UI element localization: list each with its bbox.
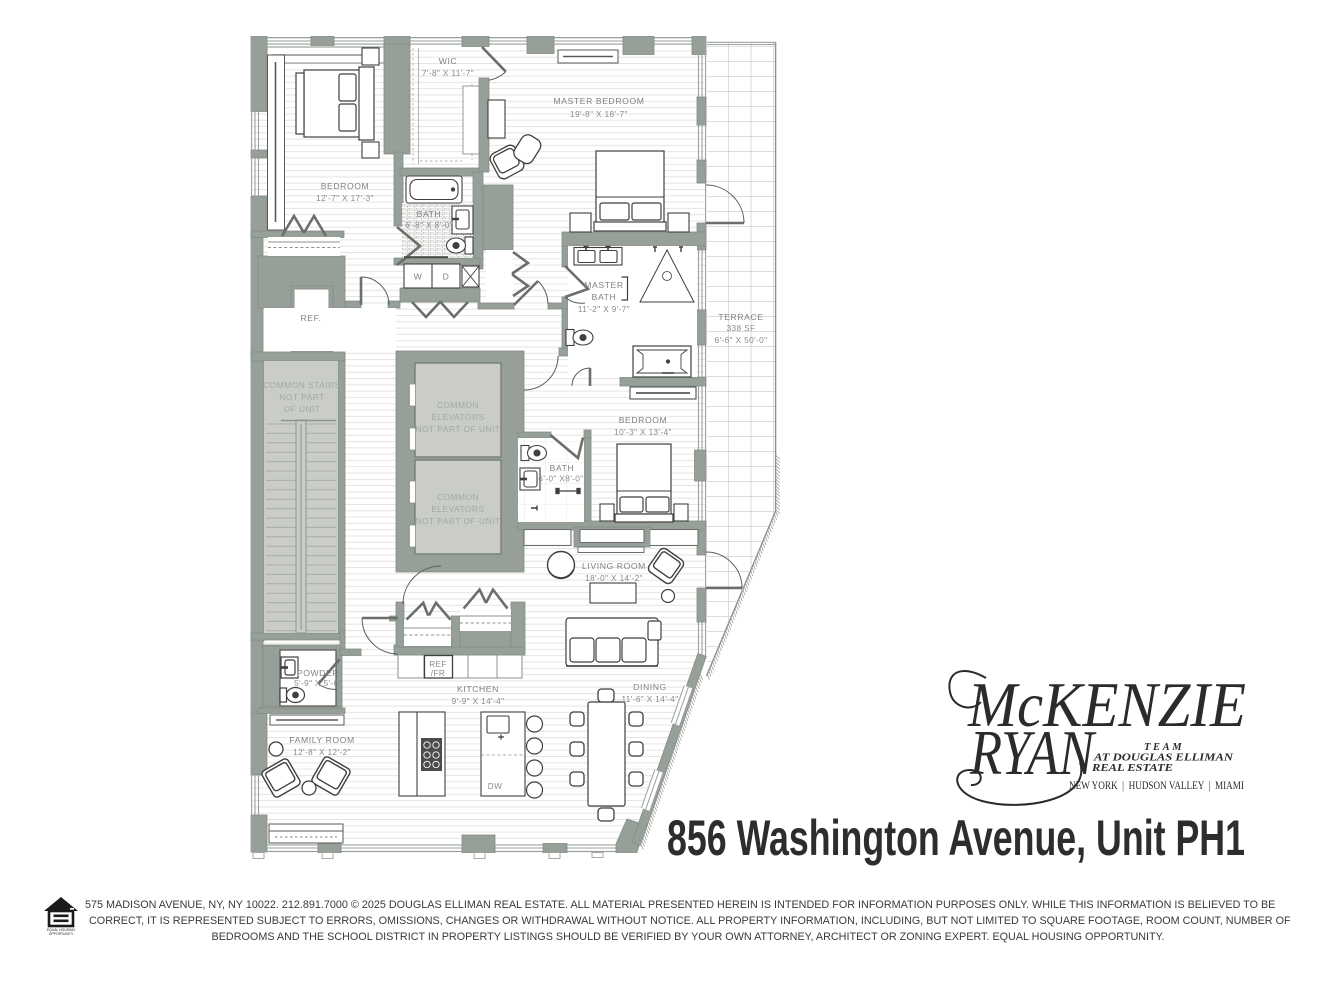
svg-text:NOT PART OF UNIT: NOT PART OF UNIT bbox=[415, 424, 500, 434]
svg-text:BATH: BATH bbox=[592, 292, 617, 302]
svg-text:FAMILY ROOM: FAMILY ROOM bbox=[289, 735, 355, 745]
svg-text:POWDER: POWDER bbox=[297, 668, 339, 678]
svg-text:DW: DW bbox=[488, 782, 502, 791]
svg-text:BEDROOMS AND THE SCHOOL DISTRI: BEDROOMS AND THE SCHOOL DISTRICT IN PROP… bbox=[212, 931, 1165, 943]
svg-text:COMMON STAIRS: COMMON STAIRS bbox=[263, 380, 341, 390]
svg-text:11'-2" X 9'-7": 11'-2" X 9'-7" bbox=[578, 305, 630, 314]
svg-text:338 SF: 338 SF bbox=[727, 324, 756, 333]
svg-text:11'-6" X 14'-4": 11'-6" X 14'-4" bbox=[621, 695, 678, 704]
svg-text:12'-7" X 17'-3": 12'-7" X 17'-3" bbox=[316, 194, 374, 203]
svg-text:12'-8" X 12'-2": 12'-8" X 12'-2" bbox=[293, 748, 351, 757]
svg-text:D: D bbox=[443, 272, 450, 282]
svg-text:REAL ESTATE: REAL ESTATE bbox=[1091, 763, 1173, 774]
svg-text:/FR: /FR bbox=[431, 669, 445, 678]
svg-text:COMMON: COMMON bbox=[437, 492, 479, 502]
svg-text:REF.: REF. bbox=[300, 313, 321, 323]
svg-text:COMMON: COMMON bbox=[437, 400, 479, 410]
svg-text:6'-8" X 8'-0": 6'-8" X 8'-0" bbox=[405, 221, 453, 230]
svg-text:ELEVATORS: ELEVATORS bbox=[431, 504, 484, 514]
svg-text:10'-3" X 13'-4": 10'-3" X 13'-4" bbox=[614, 428, 672, 437]
svg-text:18'-0" X 14'-2": 18'-0" X 14'-2" bbox=[585, 574, 643, 583]
svg-text:LIVING ROOM: LIVING ROOM bbox=[582, 561, 646, 571]
svg-text:6'-0" X8'-0": 6'-0" X8'-0" bbox=[538, 475, 583, 484]
svg-text:W: W bbox=[414, 272, 423, 282]
svg-text:ELEVATORS: ELEVATORS bbox=[431, 412, 484, 422]
svg-text:BEDROOM: BEDROOM bbox=[321, 181, 370, 191]
svg-text:9'-9" X 14'-4": 9'-9" X 14'-4" bbox=[452, 697, 505, 706]
svg-text:OPPORTUNITY: OPPORTUNITY bbox=[49, 932, 74, 936]
svg-text:AT DOUGLAS ELLIMAN: AT DOUGLAS ELLIMAN bbox=[1093, 753, 1234, 764]
svg-text:DINING: DINING bbox=[633, 682, 667, 692]
svg-text:5'-9" X 5'-6": 5'-9" X 5'-6" bbox=[294, 679, 342, 688]
svg-text:TEAM: TEAM bbox=[1144, 742, 1184, 753]
svg-text:BATH: BATH bbox=[550, 463, 575, 473]
svg-text:19'-8" X 18'-7": 19'-8" X 18'-7" bbox=[570, 110, 628, 119]
svg-text:BEDROOM: BEDROOM bbox=[619, 415, 668, 425]
svg-text:MASTER: MASTER bbox=[584, 280, 623, 290]
svg-text:NOT PART OF UNIT: NOT PART OF UNIT bbox=[415, 516, 500, 526]
svg-text:NOT PART: NOT PART bbox=[279, 392, 324, 402]
svg-text:KITCHEN: KITCHEN bbox=[457, 684, 499, 694]
svg-text:RYAN: RYAN bbox=[969, 717, 1097, 788]
svg-text:575 MADISON AVENUE, NY, NY 100: 575 MADISON AVENUE, NY, NY 10022. 212.89… bbox=[85, 899, 1275, 911]
svg-text:6'-6" X 50'-0": 6'-6" X 50'-0" bbox=[715, 336, 768, 345]
svg-text:7'-8" X 11'-7": 7'-8" X 11'-7" bbox=[422, 69, 474, 78]
svg-text:856 Washington Avenue, Unit PH: 856 Washington Avenue, Unit PH1 bbox=[667, 810, 1245, 866]
svg-text:OF UNIT: OF UNIT bbox=[284, 404, 321, 414]
svg-text:CORRECT, IT IS REPRESENTED SUB: CORRECT, IT IS REPRESENTED SUBJECT TO ER… bbox=[89, 915, 1291, 927]
svg-text:TERRACE: TERRACE bbox=[718, 312, 763, 322]
svg-text:BATH: BATH bbox=[417, 209, 442, 219]
svg-text:REF: REF bbox=[429, 660, 447, 669]
svg-text:WIC: WIC bbox=[439, 56, 458, 66]
svg-text:MASTER BEDROOM: MASTER BEDROOM bbox=[553, 96, 644, 106]
svg-text:NEW YORK | HUDSON VALLEY |: NEW YORK | HUDSON VALLEY | MIAMI bbox=[1069, 780, 1244, 792]
